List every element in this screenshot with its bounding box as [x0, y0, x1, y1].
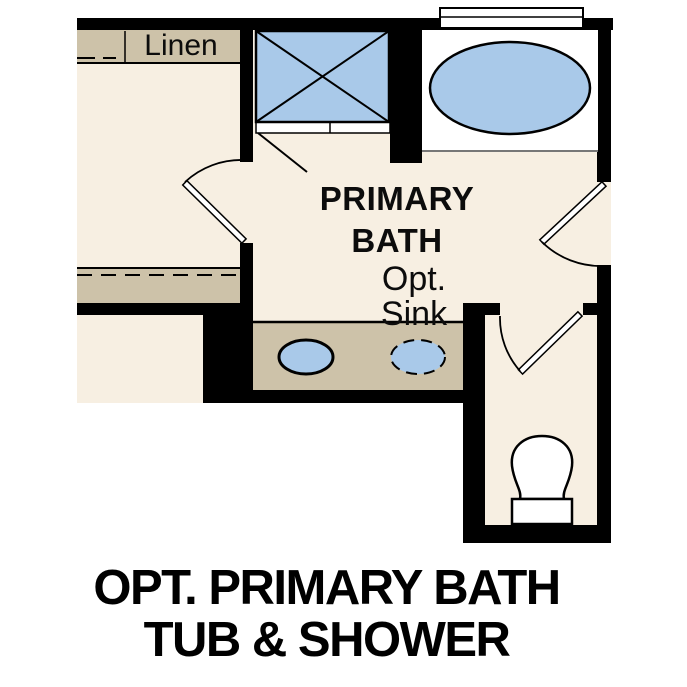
sink-icon — [279, 340, 333, 374]
toilet-bowl — [512, 436, 572, 499]
plan-caption: OPT. PRIMARY BATH TUB & SHOWER — [34, 562, 619, 666]
optional-sink-icon — [391, 340, 445, 374]
opt-sink-label-line1: Opt. — [314, 262, 514, 297]
plan-caption-line1: OPT. PRIMARY BATH — [34, 562, 619, 614]
linen-label: Linen — [111, 29, 251, 63]
room-name-line2: BATH — [297, 224, 497, 257]
toilet-tank — [512, 499, 572, 524]
plan-caption-line2: TUB & SHOWER — [34, 614, 619, 666]
wall — [463, 525, 611, 543]
wall — [203, 390, 465, 403]
window-icon — [440, 8, 583, 28]
wall — [597, 313, 611, 543]
toilet-icon — [512, 436, 572, 524]
closet-shelf — [77, 268, 241, 303]
bathtub-icon — [430, 42, 590, 134]
shower-threshold — [256, 122, 390, 133]
window-frame — [440, 8, 583, 28]
wall — [77, 303, 253, 315]
wall — [203, 305, 253, 400]
shower-curb — [256, 122, 390, 133]
wall — [463, 303, 485, 525]
room-name-line1: PRIMARY — [297, 182, 497, 215]
floor-plan-figure: Linen PRIMARY BATH Opt. Sink OPT. PRIMAR… — [0, 0, 687, 687]
wall — [390, 18, 422, 163]
opt-sink-label-line2: Sink — [314, 297, 514, 332]
wall — [597, 18, 611, 182]
shower-icon — [256, 31, 389, 122]
